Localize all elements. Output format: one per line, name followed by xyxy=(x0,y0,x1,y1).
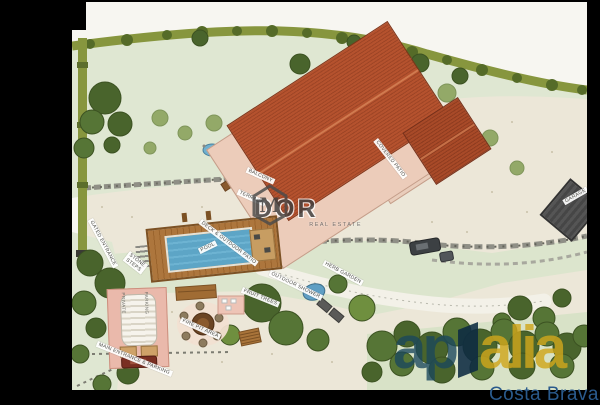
scan-corner-artifact xyxy=(72,2,86,30)
apialia-logo: ap alia Costa Brava xyxy=(393,320,600,405)
site-plan-image: POOL PRIVATE PARKING GARAGE GATED ENTRAN… xyxy=(0,0,600,405)
pool-chair xyxy=(254,234,260,240)
apialia-logo-prefix: ap xyxy=(393,320,455,376)
apialia-house-glyph-icon xyxy=(458,322,478,378)
midor-hexagon: M xyxy=(252,184,288,226)
garden-steps xyxy=(239,328,261,346)
parking-label-1: PRIVATE xyxy=(121,292,127,314)
deck-post xyxy=(182,213,188,222)
garage-label: GARAGE xyxy=(562,187,587,206)
roof-ridge xyxy=(420,124,475,161)
apialia-logo-subtitle: Costa Brava xyxy=(489,384,599,405)
parking-label-2: PARKING xyxy=(144,292,150,315)
midor-watermark: M DOR REAL ESTATE xyxy=(252,184,392,234)
midor-tagline: REAL ESTATE xyxy=(309,222,362,228)
wooden-table xyxy=(176,285,217,301)
svg-text:M: M xyxy=(260,192,281,217)
dining-patio xyxy=(218,296,244,314)
pool-chair xyxy=(264,247,270,253)
deck-post xyxy=(206,211,212,220)
pool-label: POOL xyxy=(198,240,218,254)
apialia-logo-suffix: alia xyxy=(479,320,563,376)
